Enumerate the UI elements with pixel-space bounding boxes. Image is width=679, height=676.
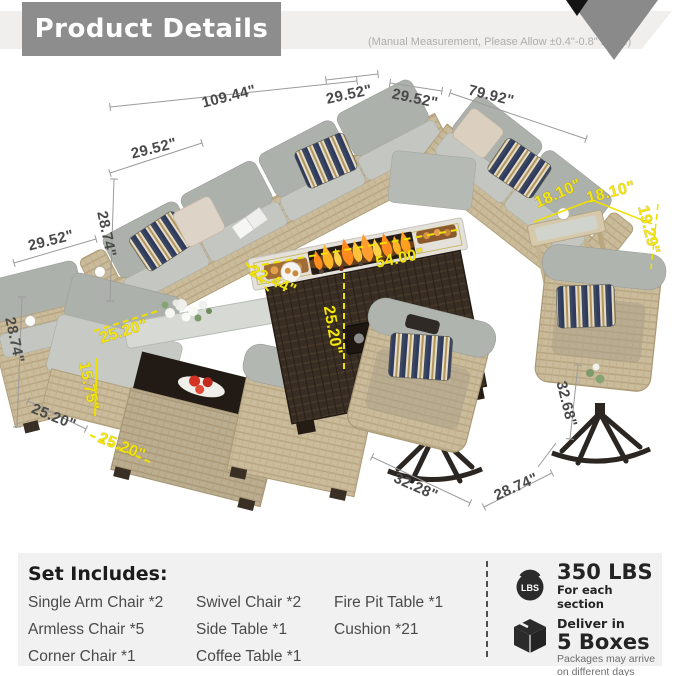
dim-left-side: 29.52" <box>26 227 75 255</box>
weight-value: 350 LBS <box>557 561 660 583</box>
list-item: Swivel Chair *2 <box>196 589 301 616</box>
list-item: Side Table *1 <box>196 616 301 643</box>
striped-pillow <box>556 284 615 328</box>
boxes-note: Packages may arrive on different days <box>557 653 655 676</box>
corner-chair <box>387 150 476 210</box>
set-includes-column-1: Single Arm Chair *2 Armless Chair *5 Cor… <box>28 589 163 670</box>
set-includes-column-2: Swivel Chair *2 Side Table *1 Coffee Tab… <box>196 589 301 670</box>
boxes-value: 5 Boxes <box>557 631 655 653</box>
boxes-note-line1: Packages may arrive <box>557 653 655 665</box>
weight-row: LBS 350 LBS For each section <box>512 561 660 611</box>
dashed-divider <box>486 561 488 657</box>
furniture-illustration: 109.44" 29.52" 29.52" 79.92" 29.52" 29.5… <box>0 55 679 545</box>
boxes-row: Deliver in 5 Boxes Packages may arrive o… <box>512 617 660 676</box>
kettlebell-weight-icon: LBS <box>512 561 548 603</box>
swivel-chair-right <box>530 243 668 463</box>
shipping-info: LBS 350 LBS For each section Deliver in <box>512 561 660 676</box>
dim-main-back: 109.44" <box>200 82 258 112</box>
lbs-icon-label: LBS <box>521 583 539 593</box>
dim-swivel-depth: 28.74" <box>491 470 540 504</box>
boxes-note-line2: on different days <box>557 666 634 676</box>
list-item: Single Arm Chair *2 <box>28 589 163 616</box>
banner-arrow-small-icon <box>566 0 588 16</box>
list-item: Coffee Table *1 <box>196 643 301 670</box>
list-item: Cushion *21 <box>334 616 443 643</box>
page-title-text: Product Details <box>35 14 269 44</box>
set-includes-panel: Set Includes: Single Arm Chair *2 Armles… <box>18 553 662 666</box>
list-item: Fire Pit Table *1 <box>334 589 443 616</box>
product-diagram: 109.44" 29.52" 29.52" 79.92" 29.52" 29.5… <box>0 55 679 545</box>
set-includes-heading: Set Includes: <box>28 563 168 585</box>
set-includes-column-3: Fire Pit Table *1 Cushion *21 <box>334 589 443 643</box>
list-item: Corner Chair *1 <box>28 643 163 670</box>
product-details-page: Product Details (Manual Measurement, Ple… <box>0 0 679 676</box>
weight-note: For each section <box>557 583 660 611</box>
deliver-prefix: Deliver in <box>557 617 655 631</box>
page-title: Product Details <box>22 2 281 56</box>
list-item: Armless Chair *5 <box>28 616 163 643</box>
dim-sidetable-height: 19.29" <box>634 204 662 256</box>
striped-pillow <box>388 333 453 381</box>
box-icon <box>512 617 548 655</box>
